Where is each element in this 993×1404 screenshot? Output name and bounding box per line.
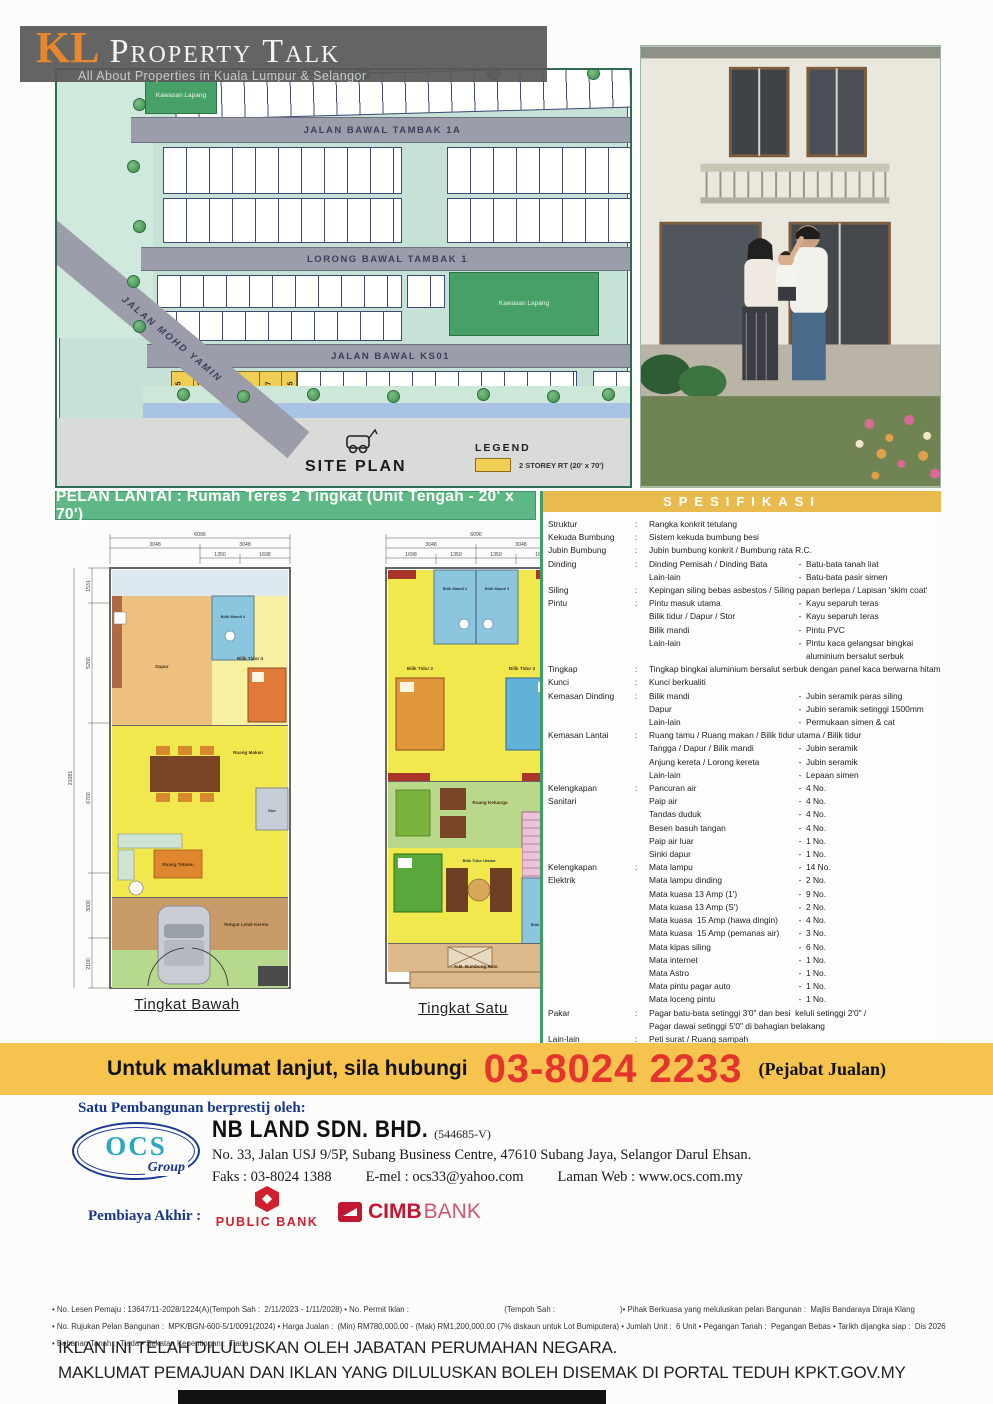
floor-plan-banner: PELAN LANTAI : Rumah Teres 2 Tingkat (Un…: [55, 491, 536, 520]
spec-row: Tandas duduk - 4 No.: [548, 808, 939, 821]
spec-label: [548, 941, 635, 954]
spec-colon: :: [635, 690, 649, 703]
spec-value: [806, 1020, 939, 1033]
site-plan: Kawasan Lapang JALAN BAWAL TAMBAK 1A LOR…: [55, 68, 632, 488]
spec-row: Tangga / Dapur / Bilik mandi - Jubin ser…: [548, 742, 939, 755]
spec-value: [806, 676, 939, 689]
spec-row: Bilik tidur / Dapur / Stor - Kayu separu…: [548, 610, 939, 623]
public-bank-name: PUBLIC BANK: [212, 1215, 322, 1229]
spec-desc: Mata loceng pintu: [649, 993, 794, 1006]
svg-text:Ruang Keluarga: Ruang Keluarga: [472, 800, 508, 805]
spec-dash: -: [794, 610, 806, 623]
spec-desc: Mata kuasa 15 Amp (hawa dingin): [649, 914, 794, 927]
spec-label: Dinding: [548, 558, 635, 571]
spec-dash: [794, 518, 806, 531]
spec-label: [548, 835, 635, 848]
lot-row: [447, 198, 632, 243]
svg-text:5200: 5200: [86, 657, 92, 669]
spec-dash: -: [794, 571, 806, 584]
spec-desc: Mata lampu dinding: [649, 874, 794, 887]
spec-value: Kayu separuh teras: [806, 610, 939, 623]
legal-line: • No. Lesen Pemaju : 13647/11-2028/1224(…: [52, 1301, 964, 1318]
spec-desc: Tangga / Dapur / Bilik mandi: [649, 742, 794, 755]
tree-icon: [133, 98, 146, 111]
svg-text:Ruang Tetamu: Ruang Tetamu: [162, 862, 194, 867]
spec-colon: [635, 808, 649, 821]
spec-label: [548, 756, 635, 769]
spec-colon: :: [635, 518, 649, 531]
ocs-group-logo: OCS Group: [72, 1122, 200, 1180]
svg-text:1350: 1350: [214, 552, 226, 558]
spec-value: Permukaan simen & cat: [806, 716, 939, 729]
lot-row: [163, 198, 402, 243]
spec-label: Pintu: [548, 597, 635, 610]
road-lorong-bawal-tambak-1: LORONG BAWAL TAMBAK 1: [141, 247, 632, 271]
spec-label: Tingkap: [548, 663, 635, 676]
tree-icon: [177, 388, 190, 401]
svg-text:Bilik Tidur Utama: Bilik Tidur Utama: [463, 858, 497, 863]
spec-colon: [635, 1020, 649, 1033]
spec-desc: Bilik mandi: [649, 690, 794, 703]
spec-dash: [794, 531, 806, 544]
spec-value: 4 No.: [806, 808, 939, 821]
contact-suffix: (Pejabat Jualan): [758, 1059, 886, 1080]
spec-label: [548, 927, 635, 940]
spec-label: [548, 848, 635, 861]
spec-colon: :: [635, 584, 649, 597]
spec-dash: -: [794, 597, 806, 610]
spec-dash: -: [794, 756, 806, 769]
lot-row: [163, 147, 402, 194]
spec-colon: :: [635, 729, 649, 742]
spec-dash: -: [794, 637, 806, 663]
spec-dash: -: [794, 558, 806, 571]
spec-row: Dapur - Jubin seramik setinggi 1500mm: [548, 703, 939, 716]
road-label: JALAN BAWAL KS01: [331, 351, 450, 362]
logo-kl: KL: [36, 28, 100, 68]
spec-colon: [635, 716, 649, 729]
spec-label: Kunci: [548, 676, 635, 689]
spec-desc: Sistem kekuda bumbung besi: [649, 531, 794, 544]
spec-dash: -: [794, 914, 806, 927]
cimb-name-light: BANK: [424, 1200, 481, 1224]
svg-text:Stor: Stor: [268, 808, 276, 813]
road-label: JALAN BAWAL TAMBAK 1A: [304, 125, 462, 136]
road-label: LORONG BAWAL TAMBAK 1: [307, 254, 468, 265]
spec-dash: -: [794, 808, 806, 821]
spec-desc: Bilik tidur / Dapur / Stor: [649, 610, 794, 623]
spec-label: [548, 888, 635, 901]
spec-label: [548, 1020, 635, 1033]
developer-email: E-mel : ocs33@yahoo.com: [366, 1169, 524, 1186]
spec-label: Kelengkapan: [548, 782, 635, 795]
spec-edge: [540, 491, 543, 1056]
spec-colon: [635, 927, 649, 940]
developer-details: NB LAND SDN. BHD. (544685-V) No. 33, Jal…: [212, 1120, 912, 1186]
svg-text:3048: 3048: [239, 542, 251, 548]
spec-value: 4 No.: [806, 822, 939, 835]
public-bank-logo: PUBLIC BANK: [212, 1186, 322, 1229]
spec-value: Pintu kaca gelangsar bingkai aluminium b…: [806, 637, 939, 663]
spec-desc: Pancuran air: [649, 782, 794, 795]
svg-text:Bilik Tidur 3: Bilik Tidur 3: [509, 666, 536, 671]
open-space-label: Kawasan Lapang: [499, 300, 549, 308]
spec-colon: [635, 888, 649, 901]
contact-phone: 03-8024 2233: [484, 1049, 743, 1089]
cimb-name-bold: CIMB: [368, 1200, 422, 1224]
spec-label: Kemasan Lantai: [548, 729, 635, 742]
spec-colon: :: [635, 861, 649, 874]
svg-text:3048: 3048: [425, 542, 437, 548]
spec-row: Kunci : Kunci berkualiti: [548, 676, 939, 689]
spec-dash: -: [794, 690, 806, 703]
spec-row: Struktur : Rangka konkrit tetulang: [548, 518, 939, 531]
spec-row: Sanitari Paip air - 4 No.: [548, 795, 939, 808]
spec-panel: SPESIFIKASI Struktur : Rangka konkrit te…: [540, 491, 941, 1056]
spec-dash: -: [794, 993, 806, 1006]
spec-colon: :: [635, 544, 649, 557]
spec-colon: :: [635, 558, 649, 571]
spec-dash: -: [794, 927, 806, 940]
spec-row: Bilik mandi - Pintu PVC: [548, 624, 939, 637]
spec-row: Pintu : Pintu masuk utama - Kayu separuh…: [548, 597, 939, 610]
spec-desc: Ruang tamu / Ruang makan / Bilik tidur u…: [649, 729, 794, 742]
spec-row: Lain-lain - Permukaan simen & cat: [548, 716, 939, 729]
family-photo: [640, 45, 941, 488]
spec-value: 1 No.: [806, 954, 939, 967]
spec-row: Mata kuasa 15 Amp (pemanas air) - 3 No.: [548, 927, 939, 940]
legend: LEGEND 2 STOREY RT (20' x 70'): [475, 442, 604, 472]
spec-label: [548, 703, 635, 716]
spec-row: Siling : Kepingan siling bebas asbestos …: [548, 584, 939, 597]
open-space-large: Kawasan Lapang: [449, 272, 599, 336]
svg-text:1350: 1350: [490, 552, 502, 558]
tree-icon: [133, 320, 146, 333]
spec-colon: [635, 756, 649, 769]
spec-row: Mata kuasa 15 Amp (hawa dingin) - 4 No.: [548, 914, 939, 927]
spec-desc: Dapur: [649, 703, 794, 716]
svg-text:Ruang Makan: Ruang Makan: [233, 750, 263, 755]
tree-icon: [547, 390, 560, 403]
spec-row: Kelengkapan : Mata lampu - 14 No.: [548, 861, 939, 874]
spec-label: [548, 954, 635, 967]
spec-value: [806, 544, 939, 557]
svg-text:6700: 6700: [86, 792, 92, 804]
tree-icon: [602, 388, 615, 401]
spec-row: Kemasan Dinding : Bilik mandi - Jubin se…: [548, 690, 939, 703]
spec-dash: [794, 544, 806, 557]
spec-label: [548, 967, 635, 980]
spec-desc: Paip air luar: [649, 835, 794, 848]
spec-row: Lain-lain - Batu-bata pasir simen: [548, 571, 939, 584]
spec-colon: :: [635, 597, 649, 610]
svg-text:3048: 3048: [515, 542, 527, 548]
spec-row: Lain-lain - Pintu kaca gelangsar bingkai…: [548, 637, 939, 663]
spec-label: Jubin Bumbung: [548, 544, 635, 557]
spec-row: Lain-lain - Lepaan simen: [548, 769, 939, 782]
spec-label: Kelengkapan: [548, 861, 635, 874]
svg-text:1531: 1531: [86, 580, 92, 592]
spec-colon: [635, 835, 649, 848]
svg-text:6096: 6096: [470, 532, 482, 538]
spec-value: Jubin seramik setinggi 1500mm: [806, 703, 939, 716]
logo-name: Property Talk: [110, 33, 341, 71]
spec-colon: [635, 874, 649, 887]
tree-icon: [387, 390, 400, 403]
spec-value: 14 No.: [806, 861, 939, 874]
spec-value: 4 No.: [806, 782, 939, 795]
spec-dash: -: [794, 874, 806, 887]
spec-desc: Mata kuasa 13 Amp (1'): [649, 888, 794, 901]
spec-desc: Lain-lain: [649, 769, 794, 782]
developer-name: NB LAND SDN. BHD.: [212, 1116, 428, 1144]
spec-colon: [635, 941, 649, 954]
tree-icon: [133, 220, 146, 233]
spec-desc: Mata kuasa 13 Amp (S'): [649, 901, 794, 914]
spec-label: Sanitari: [548, 795, 635, 808]
spec-row: Kekuda Bumbung : Sistem kekuda bumbung b…: [548, 531, 939, 544]
developer-tagline: Satu Pembangunan berprestij oleh:: [78, 1100, 306, 1117]
spec-row: Paip air luar - 1 No.: [548, 835, 939, 848]
spec-value: [806, 729, 939, 742]
contact-bar: Untuk maklumat lanjut, sila hubungi 03-8…: [0, 1043, 993, 1095]
spec-dash: -: [794, 769, 806, 782]
spec-value: Jubin seramik: [806, 756, 939, 769]
spec-dash: -: [794, 835, 806, 848]
spec-dash: -: [794, 848, 806, 861]
open-space-small: Kawasan Lapang: [145, 78, 217, 114]
spec-colon: :: [635, 676, 649, 689]
spec-label: Elektrik: [548, 874, 635, 887]
spec-desc: Mata kuasa 15 Amp (pemanas air): [649, 927, 794, 940]
spec-colon: [635, 769, 649, 782]
spec-label: Kemasan Dinding: [548, 690, 635, 703]
spec-value: 1 No.: [806, 993, 939, 1006]
spec-colon: [635, 795, 649, 808]
spec-row: Dinding : Dinding Pemisah / Dinding Bata…: [548, 558, 939, 571]
spec-desc: Anjung kereta / Lorong kereta: [649, 756, 794, 769]
tree-icon: [127, 275, 140, 288]
spec-value: 2 No.: [806, 901, 939, 914]
spec-value: Lepaan simen: [806, 769, 939, 782]
spec-colon: :: [635, 531, 649, 544]
svg-text:N.B. Bumbung Rata: N.B. Bumbung Rata: [454, 964, 498, 969]
spec-dash: -: [794, 901, 806, 914]
financier-label: Pembiaya Akhir :: [88, 1208, 201, 1225]
spec-colon: :: [635, 782, 649, 795]
spec-desc: Tingkap bingkai aluminium bersalut serbu…: [649, 663, 794, 676]
spec-label: [548, 993, 635, 1006]
svg-text:2100: 2100: [86, 958, 92, 970]
spec-colon: [635, 571, 649, 584]
spec-desc: Mata lampu: [649, 861, 794, 874]
public-bank-icon: [255, 1186, 279, 1212]
spec-desc: Mata internet: [649, 954, 794, 967]
spec-colon: [635, 610, 649, 623]
spec-colon: [635, 742, 649, 755]
spec-dash: -: [794, 980, 806, 993]
spec-dash: -: [794, 967, 806, 980]
spec-row: Elektrik Mata lampu dinding - 2 No.: [548, 874, 939, 887]
spec-dash: -: [794, 703, 806, 716]
svg-text:21081: 21081: [68, 771, 74, 786]
spec-value: [806, 584, 939, 597]
spec-value: Pintu PVC: [806, 624, 939, 637]
spec-colon: [635, 967, 649, 980]
svg-text:Bilik Tidur 4: Bilik Tidur 4: [237, 656, 264, 661]
spec-value: 2 No.: [806, 874, 939, 887]
logo-tagline: All About Properties in Kuala Lumpur & S…: [78, 69, 547, 83]
road-jalan-bawal-tambak-1a: JALAN BAWAL TAMBAK 1A: [131, 117, 632, 143]
spec-label: [548, 914, 635, 927]
spec-row: Mata kuasa 13 Amp (S') - 2 No.: [548, 901, 939, 914]
spec-desc: Lain-lain: [649, 716, 794, 729]
spec-desc: Mata Astro: [649, 967, 794, 980]
spec-label: Pakar: [548, 1007, 635, 1020]
spec-row: Mata pintu pagar auto - 1 No.: [548, 980, 939, 993]
spec-value: [806, 663, 939, 676]
developer-address: No. 33, Jalan USJ 9/5P, Subang Business …: [212, 1147, 912, 1164]
spec-colon: [635, 980, 649, 993]
svg-text:Bilik Mandi 3: Bilik Mandi 3: [485, 586, 510, 591]
spec-desc: Pagar batu-bata setinggi 3'0" dan besi k…: [649, 1007, 794, 1020]
spec-label: [548, 637, 635, 663]
spec-row: Kelengkapan : Pancuran air - 4 No.: [548, 782, 939, 795]
spec-dash: -: [794, 624, 806, 637]
svg-text:Bilik Mandi 4: Bilik Mandi 4: [221, 614, 246, 619]
spec-colon: :: [635, 663, 649, 676]
spec-desc: Lain-lain: [649, 637, 794, 663]
spec-colon: [635, 954, 649, 967]
legal-line: • No. Rujukan Pelan Bangunan : MPK/BGN-6…: [52, 1318, 964, 1335]
spec-desc: Dinding Pemisah / Dinding Bata: [649, 558, 794, 571]
spec-colon: [635, 624, 649, 637]
spec-dash: [794, 1007, 806, 1020]
spec-label: [548, 901, 635, 914]
svg-text:3048: 3048: [149, 542, 161, 548]
spec-value: Batu-bata tanah liat: [806, 558, 939, 571]
spec-row: Anjung kereta / Lorong kereta - Jubin se…: [548, 756, 939, 769]
spec-dash: -: [794, 954, 806, 967]
spec-value: 1 No.: [806, 980, 939, 993]
spec-value: 1 No.: [806, 835, 939, 848]
spec-dash: [794, 729, 806, 742]
spec-dash: -: [794, 742, 806, 755]
spec-label: Struktur: [548, 518, 635, 531]
approval-line-2: MAKLUMAT PEMAJUAN DAN IKLAN YANG DILULUS…: [58, 1360, 906, 1385]
spec-label: [548, 980, 635, 993]
spec-row: Tingkap : Tingkap bingkai aluminium bers…: [548, 663, 939, 676]
contact-prefix: Untuk maklumat lanjut, sila hubungi: [107, 1057, 468, 1081]
spec-colon: [635, 637, 649, 663]
spec-row: Mata Astro - 1 No.: [548, 967, 939, 980]
tree-icon: [307, 388, 320, 401]
spec-row: Pagar dawai setinggi 5'0" di bahagian be…: [548, 1020, 939, 1033]
svg-text:Bilik Tidur 2: Bilik Tidur 2: [407, 666, 434, 671]
spec-row: Mata kipas siling - 6 No.: [548, 941, 939, 954]
spec-row: Besen basuh tangan - 4 No.: [548, 822, 939, 835]
spec-value: [806, 531, 939, 544]
cimb-icon: [338, 1202, 362, 1222]
ocs-logo-group-text: Group: [145, 1160, 188, 1176]
svg-text:Dapur: Dapur: [155, 664, 168, 669]
spec-dash: -: [794, 941, 806, 954]
spec-dash: -: [794, 861, 806, 874]
spec-desc: Kunci berkualiti: [649, 676, 794, 689]
spec-desc: Rangka konkrit tetulang: [649, 518, 794, 531]
tree-icon: [477, 388, 490, 401]
approval-line-1: IKLAN INI TELAH DILULUSKAN OLEH JABATAN …: [58, 1335, 906, 1360]
spec-title: SPESIFIKASI: [543, 491, 941, 512]
svg-text:1350: 1350: [450, 552, 462, 558]
spec-desc: Besen basuh tangan: [649, 822, 794, 835]
spec-label: [548, 610, 635, 623]
drain-river: [143, 403, 632, 418]
spec-row: Pakar : Pagar batu-bata setinggi 3'0" da…: [548, 1007, 939, 1020]
spec-colon: :: [635, 1007, 649, 1020]
spec-dash: -: [794, 716, 806, 729]
tree-icon: [127, 160, 140, 173]
spec-desc: Pagar dawai setinggi 5'0" di bahagian be…: [649, 1020, 794, 1033]
approval-statement: IKLAN INI TELAH DILULUSKAN OLEH JABATAN …: [58, 1335, 906, 1385]
spec-desc: Lain-lain: [649, 571, 794, 584]
spec-dash: -: [794, 888, 806, 901]
car: [158, 906, 210, 984]
svg-text:Bilik Mandi 2: Bilik Mandi 2: [443, 586, 468, 591]
floor-plan-ground: 6096 3048 3048 1350 1698 21081 1531 5200…: [62, 528, 312, 998]
spec-label: [548, 716, 635, 729]
spec-dash: -: [794, 795, 806, 808]
spec-label: [548, 624, 635, 637]
open-space-label: Kawasan Lapang: [156, 92, 206, 100]
spec-desc: Pintu masuk utama: [649, 597, 794, 610]
spec-label: Siling: [548, 584, 635, 597]
spec-colon: [635, 993, 649, 1006]
spec-label: [548, 769, 635, 782]
spec-desc: Jubin bumbung konkrit / Bumbung rata R.C…: [649, 544, 794, 557]
site-plan-title: SITE PLAN: [305, 458, 407, 476]
spec-label: [548, 571, 635, 584]
spec-row: Jubin Bumbung : Jubin bumbung konkrit / …: [548, 544, 939, 557]
spec-label: [548, 822, 635, 835]
spec-value: Jubin seramik paras siling: [806, 690, 939, 703]
developer-website: Laman Web : www.ocs.com.my: [558, 1169, 743, 1186]
spec-dash: -: [794, 782, 806, 795]
spec-row: Mata internet - 1 No.: [548, 954, 939, 967]
brand-header: KL Property Talk All About Properties in…: [20, 26, 547, 82]
spec-value: Kayu separuh teras: [806, 597, 939, 610]
spec-desc: Bilik mandi: [649, 624, 794, 637]
legend-label: 2 STOREY RT (20' x 70'): [519, 461, 604, 470]
spec-dash: [794, 663, 806, 676]
developer-reg-number: (544685-V): [434, 1127, 491, 1142]
svg-text:6096: 6096: [194, 532, 206, 538]
spec-desc: Mata kipas siling: [649, 941, 794, 954]
flyer-page: KL Property Talk All About Properties in…: [0, 0, 993, 1404]
spec-label: [548, 808, 635, 821]
legend-swatch: [475, 458, 511, 472]
spec-dash: [794, 1020, 806, 1033]
spec-value: 4 No.: [806, 795, 939, 808]
spec-row: Sinki dapur - 1 No.: [548, 848, 939, 861]
svg-text:3000: 3000: [86, 900, 92, 912]
spec-row: Mata kuasa 13 Amp (1') - 9 No.: [548, 888, 939, 901]
spec-colon: [635, 901, 649, 914]
spec-desc: Tandas duduk: [649, 808, 794, 821]
spec-row: Mata loceng pintu - 1 No.: [548, 993, 939, 1006]
spec-desc: Paip air: [649, 795, 794, 808]
spec-dash: [794, 676, 806, 689]
